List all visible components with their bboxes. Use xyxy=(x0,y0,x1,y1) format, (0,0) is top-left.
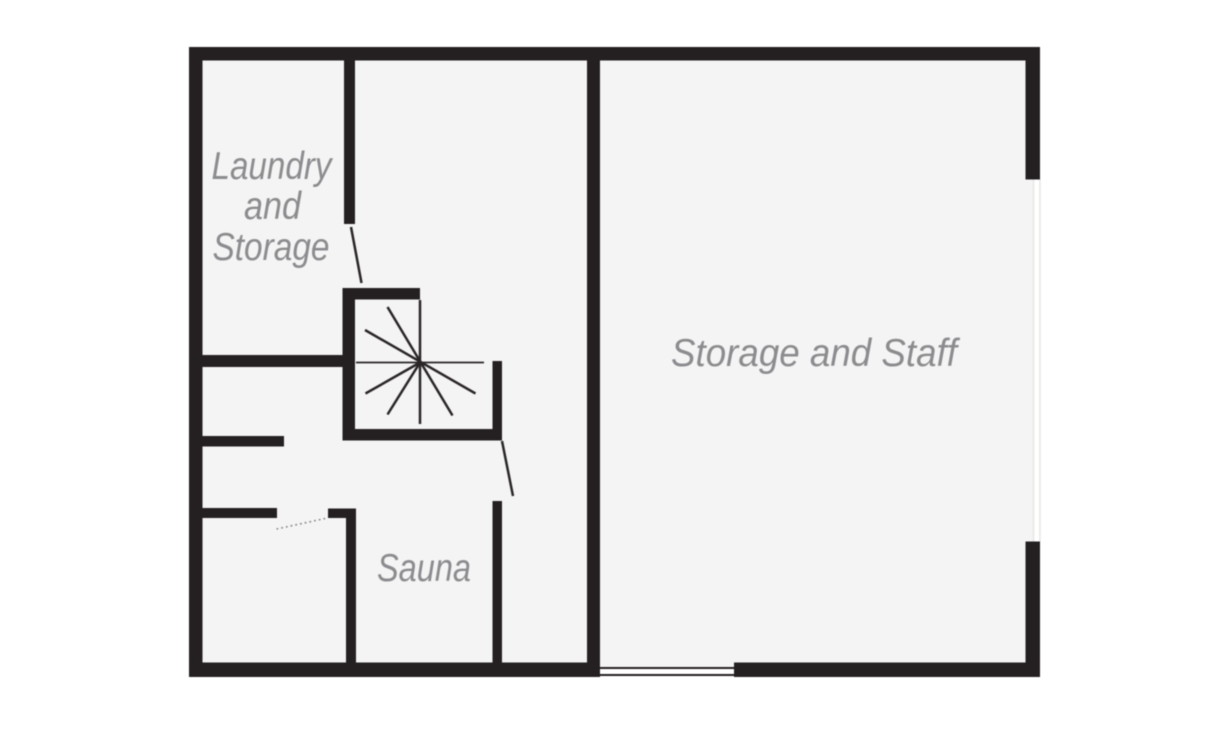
svg-text:Storage and Staff: Storage and Staff xyxy=(671,332,961,375)
svg-text:Storage: Storage xyxy=(213,226,330,269)
svg-text:and: and xyxy=(244,185,302,228)
svg-text:Laundry: Laundry xyxy=(212,145,334,188)
svg-text:Sauna: Sauna xyxy=(377,547,471,590)
